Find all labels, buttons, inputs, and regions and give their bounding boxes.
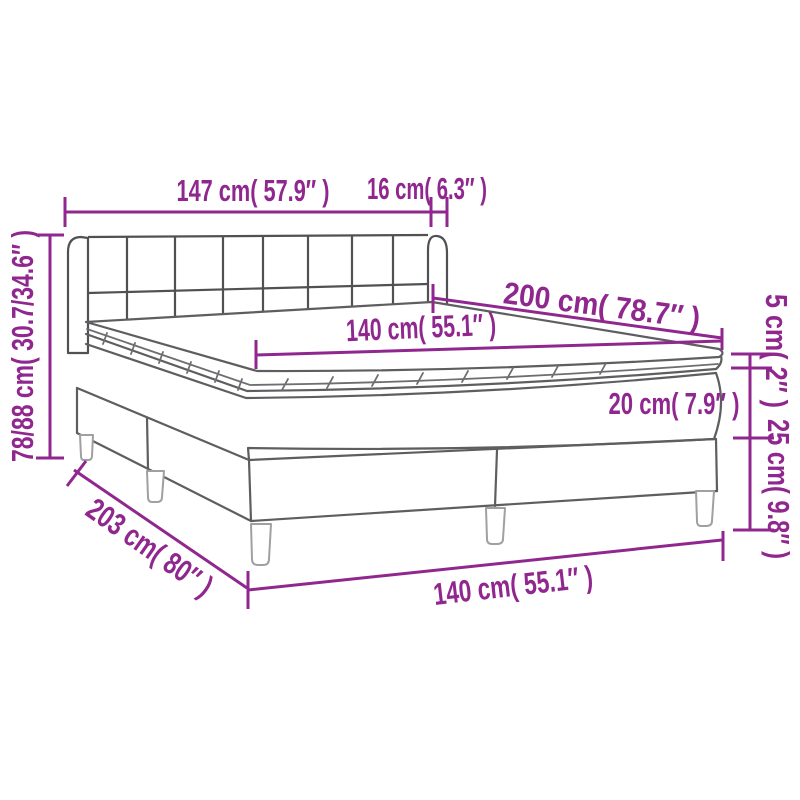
base-front-left-corner: [249, 460, 251, 521]
base-right-edge: [716, 439, 717, 491]
bed-dimension-diagram: 147 cm( 57.9″ ) 16 cm( 6.3″ ) 200 cm( 78…: [0, 0, 800, 800]
headboard-tuft-seam-horizontal: [88, 284, 428, 293]
label-mattress-width: 140 cm( 55.1″ ): [345, 307, 496, 349]
headboard-top-edge: [88, 235, 428, 237]
dim-line-total-height: [36, 235, 64, 458]
headboard-left-post: [68, 237, 88, 353]
base-left-seam: [147, 418, 148, 468]
leg-front-left: [251, 524, 271, 565]
base-top-left-edge: [77, 388, 249, 460]
label-topper-thickness: 5 cm( 2″ ): [759, 294, 794, 408]
label-headboard-width: 147 cm( 57.9″ ): [177, 173, 330, 208]
label-base-length: 203 cm( 80″ ): [80, 491, 220, 603]
label-base-height: 25 cm( 9.8″ ): [761, 419, 796, 559]
diagram-canvas: 147 cm( 57.9″ ) 16 cm( 6.3″ ) 200 cm( 78…: [0, 0, 800, 800]
leg-back-left: [80, 435, 93, 460]
leg-front-right: [696, 491, 714, 526]
label-total-height: 78/88 cm( 30.7/34.6″ ): [5, 230, 40, 462]
base-front-seam: [495, 450, 497, 506]
leg-front-middle: [486, 508, 505, 544]
leg-middle-left: [147, 471, 164, 502]
label-mattress-thickness: 20 cm( 7.9″ ): [609, 386, 740, 421]
base-bottom-front-edge: [251, 491, 717, 521]
label-wing-depth: 16 cm( 6.3″ ): [367, 171, 487, 206]
